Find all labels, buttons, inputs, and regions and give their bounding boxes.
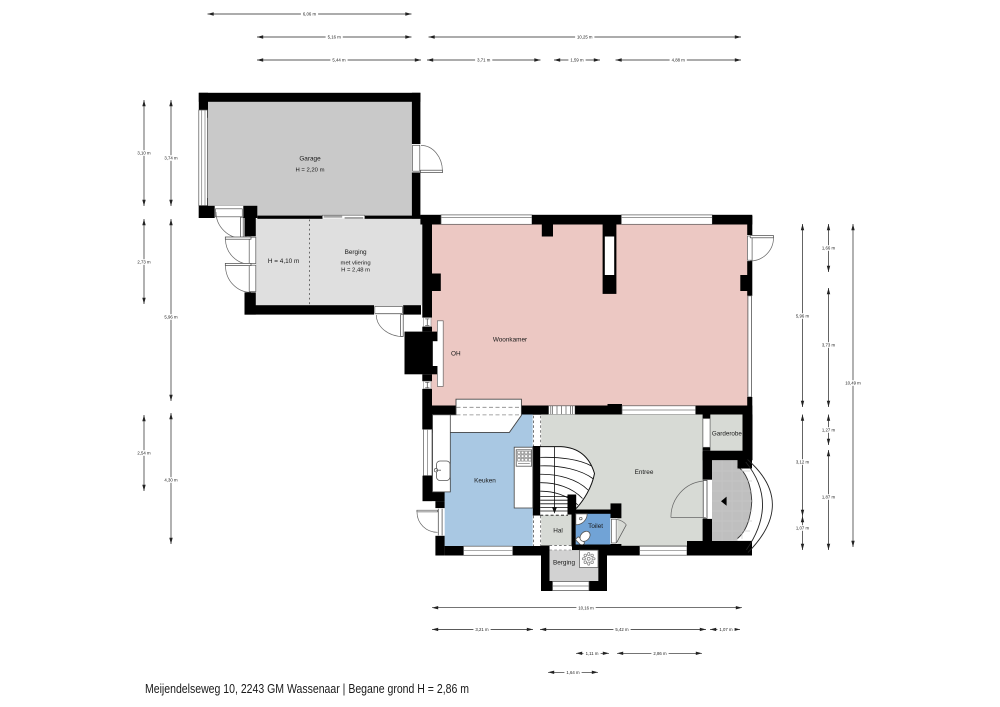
svg-text:3,10 m: 3,10 m xyxy=(137,151,151,156)
svg-text:Meijendelseweg 10, 2243 GM Was: Meijendelseweg 10, 2243 GM Wassenaar | B… xyxy=(145,681,469,696)
svg-text:H = 4,10 m: H = 4,10 m xyxy=(268,258,299,265)
svg-text:1,66 m: 1,66 m xyxy=(822,246,836,251)
svg-text:4,30 m: 4,30 m xyxy=(164,478,178,483)
svg-text:5,96 m: 5,96 m xyxy=(796,314,810,319)
svg-text:1,27 m: 1,27 m xyxy=(822,428,836,433)
svg-text:3,74 m: 3,74 m xyxy=(164,156,178,161)
svg-text:3,71 m: 3,71 m xyxy=(477,58,491,63)
svg-text:Berging: Berging xyxy=(345,249,367,256)
svg-text:1,07 m: 1,07 m xyxy=(796,526,810,531)
svg-text:1,11 m: 1,11 m xyxy=(586,651,599,656)
svg-text:10,25 m: 10,25 m xyxy=(577,35,593,40)
svg-text:2,86 m: 2,86 m xyxy=(653,651,667,656)
svg-text:Berging: Berging xyxy=(553,560,575,567)
svg-text:Toilet: Toilet xyxy=(588,523,603,530)
svg-text:Entree: Entree xyxy=(635,469,654,476)
svg-text:10,49 m: 10,49 m xyxy=(845,381,861,386)
svg-text:H = 2,20 m: H = 2,20 m xyxy=(296,168,325,174)
svg-text:4,88 m: 4,88 m xyxy=(672,58,686,63)
svg-text:10,16 m: 10,16 m xyxy=(578,605,594,610)
svg-text:1,64 m: 1,64 m xyxy=(566,670,580,675)
svg-text:1,59 m: 1,59 m xyxy=(570,58,584,63)
svg-text:3,21 m: 3,21 m xyxy=(475,627,489,632)
svg-text:3,12 m: 3,12 m xyxy=(796,460,810,465)
svg-text:5,96 m: 5,96 m xyxy=(164,315,178,320)
svg-text:3,73 m: 3,73 m xyxy=(822,343,836,348)
svg-text:2,54 m: 2,54 m xyxy=(137,451,151,456)
svg-text:Keuken: Keuken xyxy=(474,478,496,485)
svg-text:1,87 m: 1,87 m xyxy=(822,495,836,500)
svg-text:2,73 m: 2,73 m xyxy=(137,260,151,265)
svg-text:OH: OH xyxy=(451,351,461,358)
svg-text:met vliering: met vliering xyxy=(341,261,371,267)
svg-text:1,07 m: 1,07 m xyxy=(719,627,733,632)
svg-text:6,06 m: 6,06 m xyxy=(303,12,317,17)
svg-text:5,44 m: 5,44 m xyxy=(332,58,346,63)
svg-text:Hal: Hal xyxy=(553,527,563,534)
svg-text:Garage: Garage xyxy=(299,156,321,163)
svg-text:H = 2,48 m: H = 2,48 m xyxy=(341,268,370,274)
svg-text:5,42 m: 5,42 m xyxy=(615,627,629,632)
svg-text:Garderobe: Garderobe xyxy=(712,430,742,437)
svg-text:5,16 m: 5,16 m xyxy=(328,35,342,40)
svg-text:Woonkamer: Woonkamer xyxy=(493,337,528,344)
